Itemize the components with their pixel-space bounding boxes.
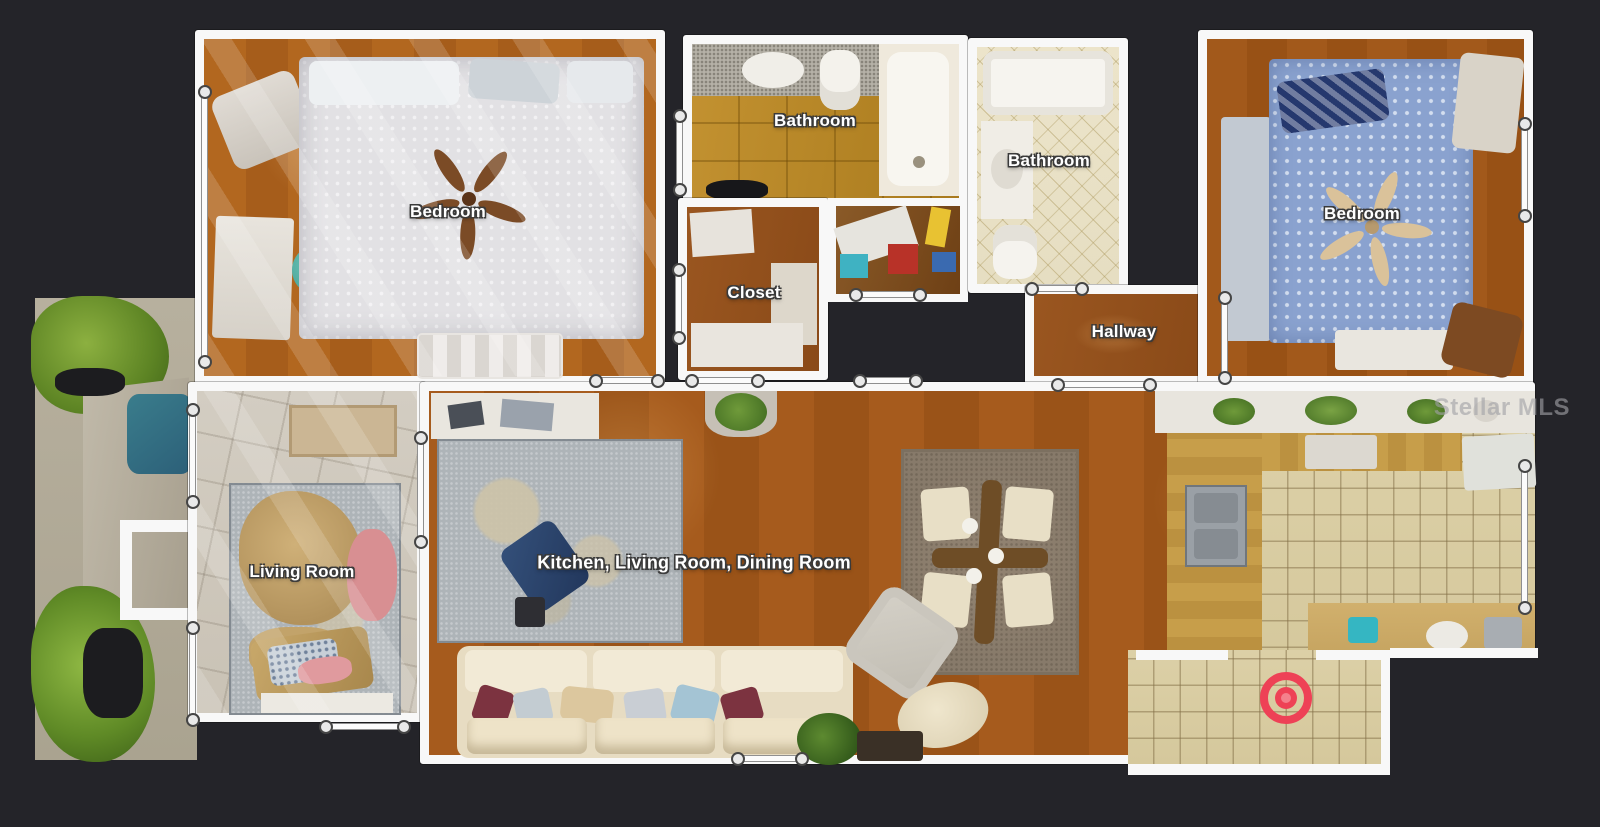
door-marker	[688, 374, 762, 388]
stove	[1305, 435, 1377, 469]
fan-blade	[1317, 226, 1368, 265]
centerpiece-flower	[962, 518, 978, 534]
door-marker	[734, 752, 806, 766]
stored-item-blue	[932, 252, 956, 272]
foyer-tile-extension	[1128, 650, 1390, 775]
pillow	[1276, 68, 1390, 135]
laundry-closet	[828, 198, 968, 302]
door-marker	[672, 266, 686, 342]
stored-item-yellow	[925, 207, 951, 248]
position-marker-center	[1281, 693, 1291, 703]
sink-basin	[1194, 529, 1238, 559]
sink-basin	[1194, 493, 1238, 523]
fan-blade	[469, 148, 512, 197]
dining-chair	[920, 486, 972, 541]
room-label-bedroom-left: Bedroom	[410, 202, 486, 222]
drain	[913, 156, 925, 168]
pillow	[567, 61, 633, 103]
toilet	[820, 50, 860, 110]
porch-wall	[120, 608, 196, 620]
plant	[715, 393, 767, 431]
side-table	[261, 693, 393, 713]
mls-watermark: Stellar MLS	[1434, 394, 1570, 422]
closet-shelf	[690, 209, 755, 257]
fan-blade	[1367, 236, 1393, 288]
closet-shelf	[691, 323, 803, 367]
door-marker	[1028, 282, 1086, 296]
window-marker	[186, 406, 200, 506]
pillow	[468, 58, 561, 104]
desk-items	[500, 399, 554, 431]
door-marker	[1054, 378, 1154, 392]
door-mat	[127, 394, 193, 474]
kitchen-sink	[1185, 485, 1247, 567]
window-marker	[186, 624, 200, 724]
room-living-room	[188, 382, 426, 722]
outdoor-area	[35, 298, 197, 760]
vanity-counter	[692, 44, 890, 96]
floorplan-viewer: Bedroom Bathroom Bathroom Closet Hallway…	[0, 0, 1600, 827]
room-label-hallway: Hallway	[1092, 322, 1157, 342]
dining-chair	[1002, 572, 1054, 628]
console-table	[289, 405, 397, 457]
sofa-back-cushion	[721, 650, 843, 692]
fan-blade	[429, 146, 469, 196]
sofa	[457, 646, 853, 758]
console-desk	[431, 393, 599, 439]
dresser	[419, 335, 561, 377]
pillow	[309, 61, 459, 105]
ceiling-fan	[409, 139, 529, 259]
door-marker	[322, 720, 408, 734]
shadow-patch	[55, 368, 125, 396]
position-marker[interactable]	[1260, 672, 1312, 724]
room-label-closet: Closet	[727, 283, 780, 303]
toilet	[993, 225, 1037, 279]
room-label-bathroom-main: Bathroom	[774, 111, 856, 131]
centerpiece-flower	[988, 548, 1004, 564]
window-marker	[1518, 462, 1532, 612]
sofa-back-cushion	[593, 650, 715, 692]
window-marker	[198, 88, 212, 366]
door-marker	[414, 434, 428, 546]
door-marker	[592, 374, 662, 388]
room-label-bathroom-second: Bathroom	[1008, 151, 1090, 171]
kitchen-zone	[1155, 391, 1535, 673]
door-marker	[856, 374, 920, 388]
dining-chair	[1002, 486, 1054, 542]
chair	[1451, 52, 1525, 154]
wall-fragment	[1136, 650, 1228, 660]
window-marker	[1518, 120, 1532, 220]
room-label-great-room: Kitchen, Living Room, Dining Room	[537, 553, 851, 574]
sofa-seat-cushion	[467, 718, 587, 754]
sofa-seat-cushion	[595, 718, 715, 754]
stored-item-teal	[840, 254, 868, 278]
island-dishes	[1426, 621, 1468, 651]
sink	[742, 52, 804, 88]
wall-fragment	[1316, 650, 1382, 660]
stored-item-red	[888, 244, 918, 274]
counter-plant	[1213, 398, 1255, 425]
room-label-living-room: Living Room	[249, 562, 354, 582]
desk-items	[447, 401, 484, 429]
door-marker	[1218, 294, 1232, 382]
bathtub	[983, 51, 1113, 115]
ceiling-fan	[1312, 167, 1432, 287]
plant-pot	[705, 391, 777, 437]
counter-plant	[1305, 396, 1357, 425]
bench	[1335, 330, 1453, 370]
shadow-patch	[83, 628, 143, 718]
desk	[212, 216, 294, 341]
island-item-teal	[1348, 617, 1378, 643]
island-sink	[1484, 617, 1522, 649]
plan-notch	[1390, 648, 1538, 766]
centerpiece-flower	[966, 568, 982, 584]
door-marker	[673, 112, 687, 194]
scan-hole	[706, 180, 768, 200]
door-marker	[852, 288, 924, 302]
room-label-bedroom-right: Bedroom	[1324, 204, 1400, 224]
dark-mat	[857, 731, 923, 761]
porch-wall	[120, 520, 132, 620]
side-table-dark	[515, 597, 545, 627]
bathtub	[879, 44, 959, 196]
